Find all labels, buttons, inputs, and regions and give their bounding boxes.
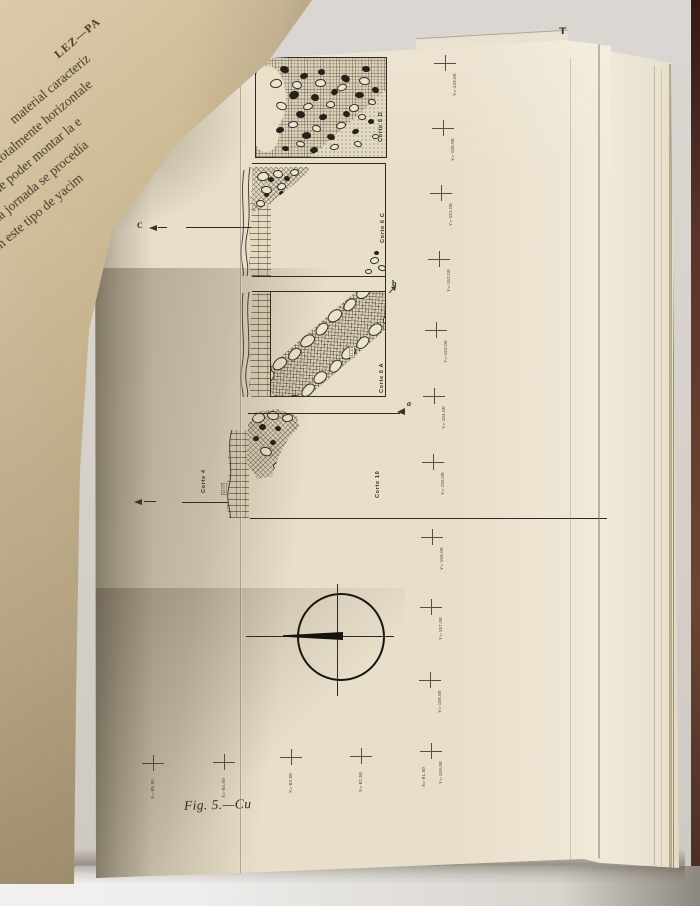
page-right-edge — [598, 44, 600, 860]
grid-coordinate-label: Y=-153.00 — [443, 340, 448, 363]
book-photo: { "book": { "caption": "Fig. 5.—Cu", "pr… — [0, 0, 700, 906]
grid-coordinate-label: Y=-151.00 — [448, 203, 453, 226]
fold-crease — [240, 58, 241, 874]
arrow-a-head — [397, 408, 405, 415]
page-stack-edge — [669, 64, 672, 870]
paper-crease — [570, 58, 571, 860]
grid-coordinate-label: X=-81.50 — [421, 767, 426, 787]
page-edge-line — [661, 70, 662, 866]
grid-coordinate-label: Y=-154.00 — [441, 406, 446, 429]
grid-coordinate-label: Y=-157.00 — [438, 617, 443, 640]
grid-coordinate-label: Y=-155.00 — [440, 472, 445, 495]
grid-coordinate-label: Y=-150.00 — [450, 138, 455, 161]
page-edge-line — [654, 66, 655, 866]
grid-coordinate-label: Y=-159.00 — [438, 761, 443, 784]
book-cover-strip — [691, 0, 700, 880]
grid-coordinate-label: Y=-158.00 — [437, 690, 442, 713]
page-corner-mark: T — [559, 26, 567, 36]
grid-coordinate-label: Y=-149.00 — [452, 73, 457, 96]
grid-coordinate-label: Y=-156.00 — [439, 547, 444, 570]
page-stack-edge — [673, 64, 674, 870]
grid-coordinate-label: Y=-152.00 — [446, 269, 451, 292]
